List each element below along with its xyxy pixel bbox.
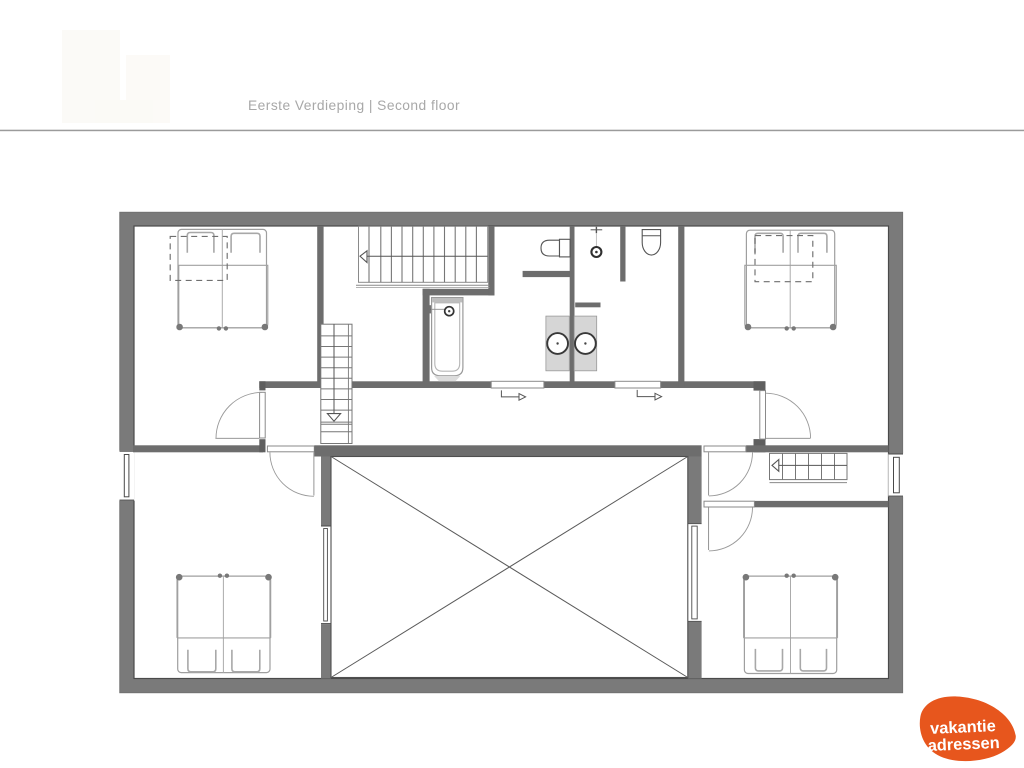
svg-text:Eerste Verdieping | Second flo: Eerste Verdieping | Second floor xyxy=(248,98,460,113)
svg-text:adressen: adressen xyxy=(927,734,1000,755)
